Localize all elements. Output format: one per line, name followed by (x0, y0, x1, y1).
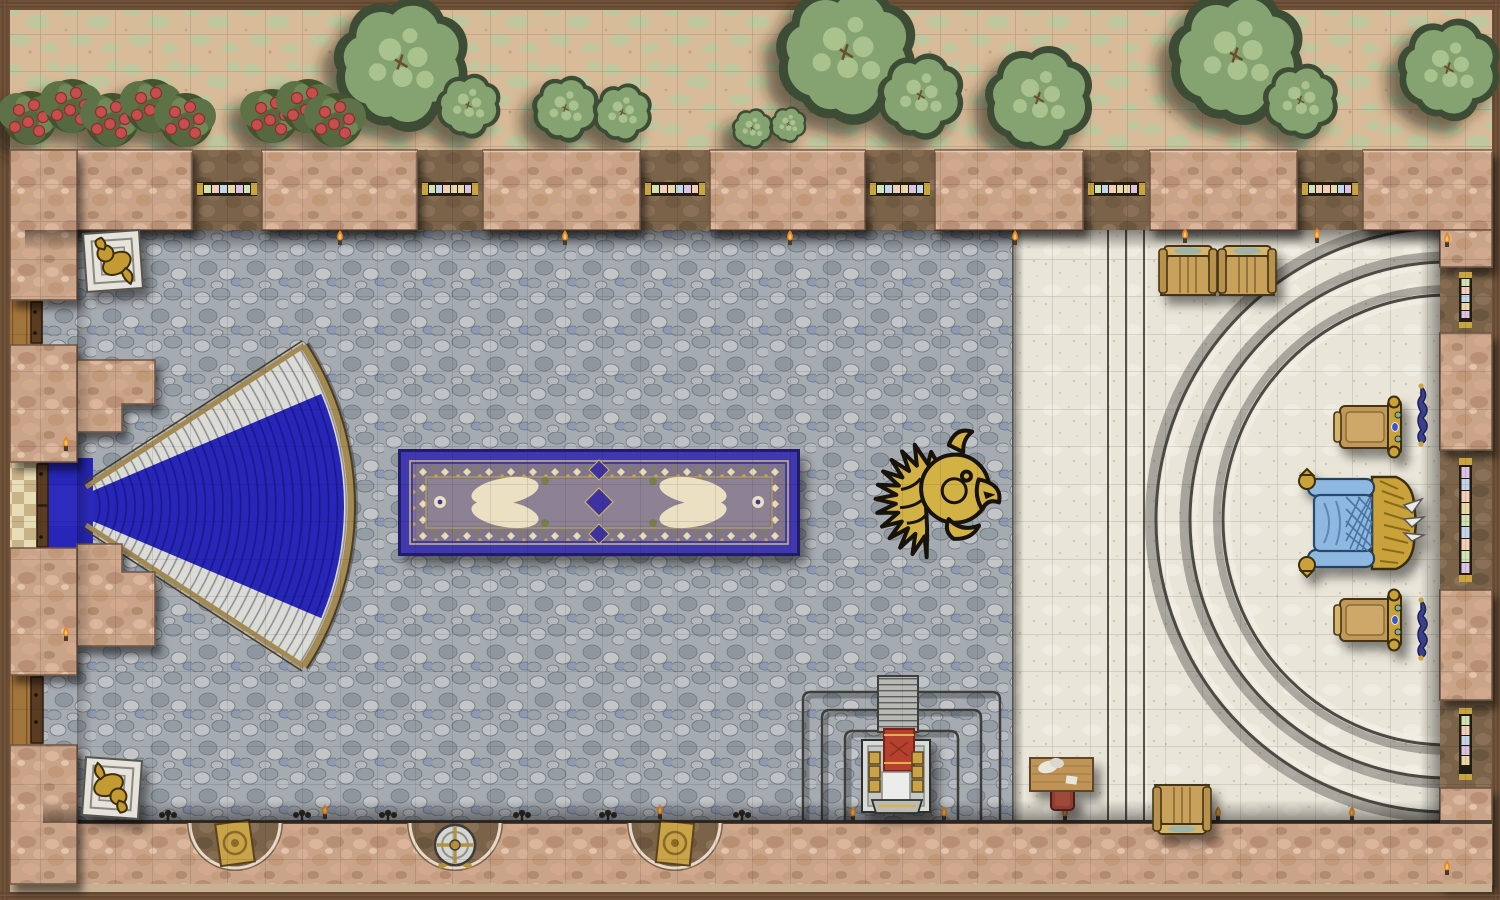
statue-southwest (82, 757, 142, 819)
statue-northwest (83, 230, 143, 292)
side-chair-north (1334, 397, 1401, 458)
throne (1299, 469, 1424, 577)
altar-shrine (862, 729, 930, 813)
battle-map-stage (0, 0, 1500, 900)
side-chair-south (1334, 590, 1401, 651)
garden (0, 0, 1499, 154)
throne-room-map (0, 0, 1500, 900)
